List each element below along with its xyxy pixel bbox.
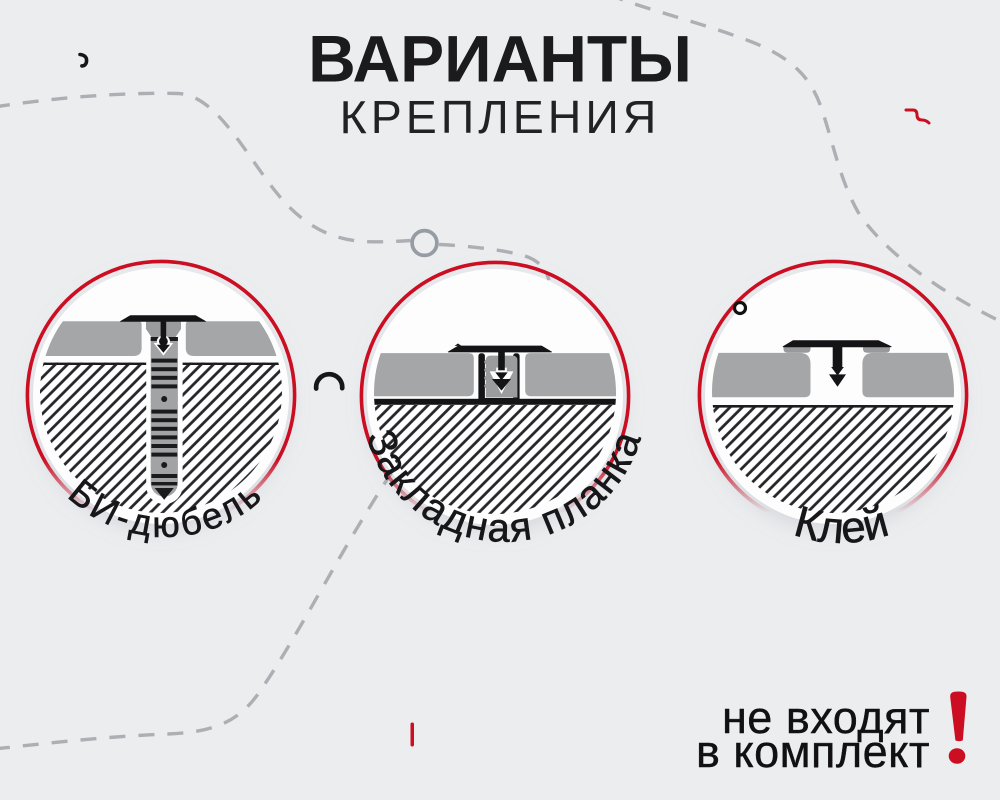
svg-text:Клей: Клей bbox=[790, 497, 894, 553]
svg-text:ВАРИАНТЫ: ВАРИАНТЫ bbox=[308, 22, 692, 96]
svg-text:в комплект: в комплект bbox=[696, 726, 930, 777]
svg-text:КРЕПЛЕНИЯ: КРЕПЛЕНИЯ bbox=[340, 91, 661, 143]
